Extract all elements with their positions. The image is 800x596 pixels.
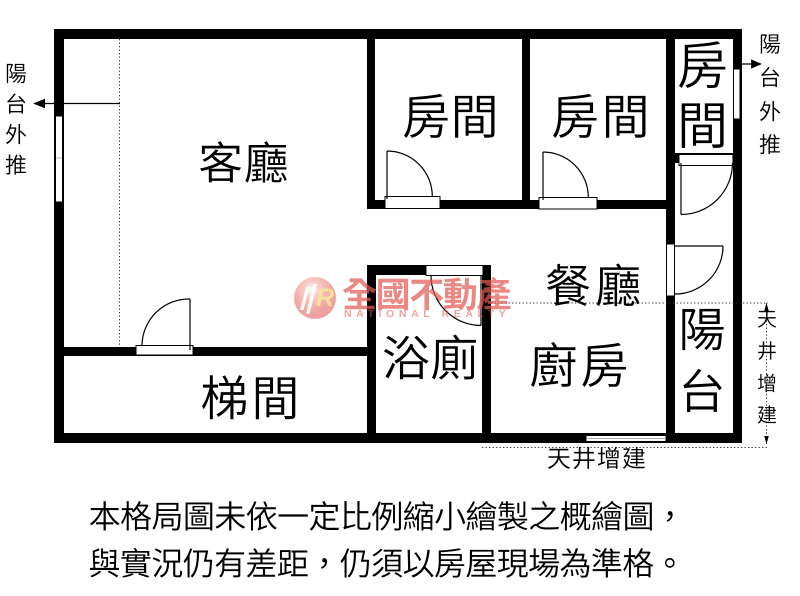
svg-text:NATIONAL REALTY: NATIONAL REALTY <box>344 308 510 320</box>
svg-text:R: R <box>316 284 334 312</box>
